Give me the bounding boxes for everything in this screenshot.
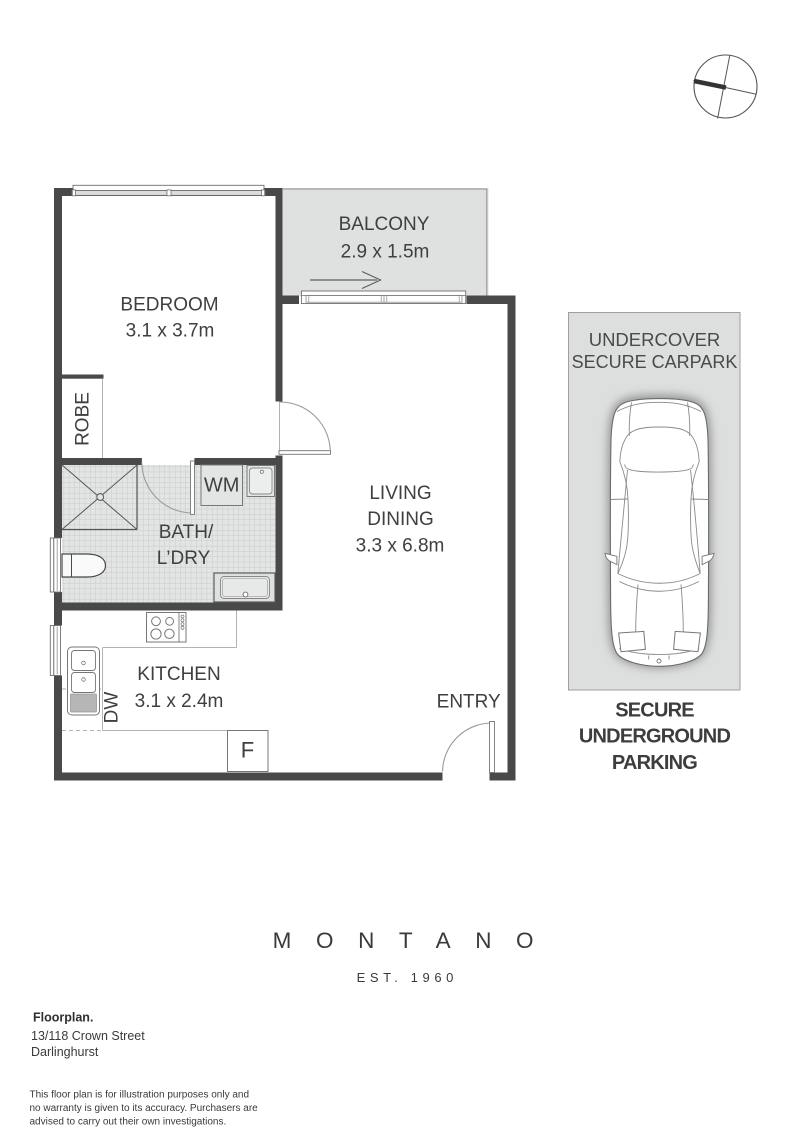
svg-text:PARKING: PARKING: [612, 752, 697, 774]
svg-text:BATH/: BATH/: [159, 522, 214, 543]
svg-text:13/118 Crown Street: 13/118 Crown Street: [31, 1029, 145, 1043]
svg-text:SECURE: SECURE: [615, 699, 694, 721]
svg-text:no warranty is given to its ac: no warranty is given to its accuracy. Pu…: [30, 1103, 259, 1114]
svg-text:ROBE: ROBE: [73, 392, 94, 446]
svg-text:L’DRY: L’DRY: [157, 548, 211, 569]
svg-text:This floor plan is for illustr: This floor plan is for illustration purp…: [30, 1090, 250, 1101]
svg-text:3.1 x 3.7m: 3.1 x 3.7m: [126, 321, 215, 342]
svg-text:BEDROOM: BEDROOM: [120, 294, 218, 315]
svg-text:SECURE CARPARK: SECURE CARPARK: [572, 352, 738, 372]
svg-text:WM: WM: [204, 475, 240, 497]
svg-text:KITCHEN: KITCHEN: [137, 664, 220, 685]
svg-text:3.3 x 6.8m: 3.3 x 6.8m: [356, 536, 445, 557]
svg-text:UNDERCOVER: UNDERCOVER: [589, 329, 721, 350]
svg-text:Floorplan.: Floorplan.: [33, 1011, 93, 1025]
svg-text:DW: DW: [102, 692, 123, 724]
svg-text:Darlinghurst: Darlinghurst: [31, 1045, 99, 1059]
svg-text:MONTANO: MONTANO: [273, 928, 559, 953]
svg-text:DINING: DINING: [367, 509, 434, 530]
svg-text:LIVING: LIVING: [369, 483, 431, 504]
svg-text:ENTRY: ENTRY: [437, 691, 501, 712]
svg-text:F: F: [241, 738, 254, 763]
svg-text:EST. 1960: EST. 1960: [357, 970, 458, 985]
svg-text:UNDERGROUND: UNDERGROUND: [579, 726, 731, 748]
svg-text:3.1 x 2.4m: 3.1 x 2.4m: [135, 691, 224, 712]
svg-text:advised to carry out their own: advised to carry out their own investiga…: [30, 1117, 227, 1128]
svg-text:2.9 x 1.5m: 2.9 x 1.5m: [341, 242, 430, 263]
svg-text:BALCONY: BALCONY: [339, 214, 430, 235]
